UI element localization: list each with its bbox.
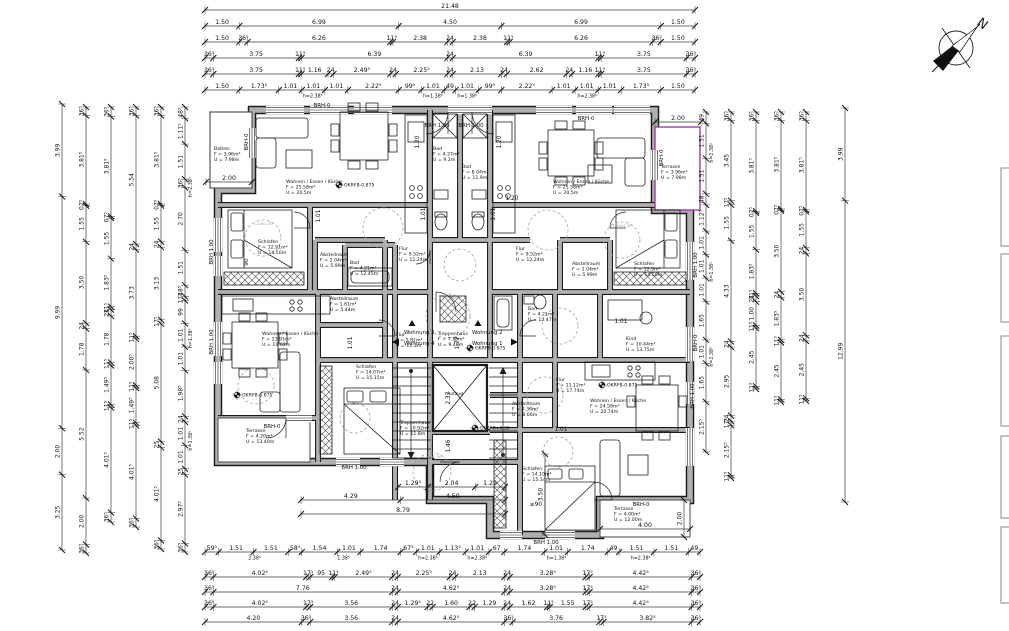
dim-label: 1.55 <box>79 217 86 231</box>
dim-label: 1.55 <box>749 224 756 238</box>
dim-label: 4.42⁵ <box>632 570 649 577</box>
dim-annotation: h=2.38⁵ <box>709 143 715 163</box>
apartment-label: Wohnung 4 <box>404 341 435 347</box>
dim-label: 1.65 <box>699 314 706 328</box>
turning-circle-label: 1.20x1.20 <box>253 221 273 226</box>
window <box>214 218 222 252</box>
room-label-abstell-br: AbstellraumF = 4.36m²U = 8.66m <box>512 401 541 418</box>
dim-chain-p7: 2.00 <box>652 115 704 126</box>
dim-label: 11⁵ <box>386 35 397 42</box>
plan-dim-label: 1.01 <box>316 209 322 222</box>
okrfb-text: OKRFB-0.875 <box>344 183 374 189</box>
window <box>214 256 222 276</box>
dim-label: 99 <box>178 308 185 316</box>
dim-annotation: h=2.38⁵ <box>631 556 651 562</box>
dim-label: 3.56 <box>344 615 358 622</box>
dim-label: 17⁵ <box>154 316 161 327</box>
dim-label: 17⁵ <box>303 600 314 607</box>
dim-label: 67⁵ <box>403 545 414 552</box>
dim-label: 59⁵ <box>207 545 218 552</box>
brh-label: BRH 1.00 <box>424 123 450 129</box>
dim-annotation: h=1.38⁵ <box>188 431 194 451</box>
dim-label: 11⁵ <box>328 570 339 577</box>
dim-label: 1.51 <box>699 169 706 183</box>
dim-label: 67 <box>493 545 501 552</box>
dim-label: 3.56 <box>344 600 358 607</box>
dim-annotation: 2.38⁵ <box>248 556 261 562</box>
dim-label: 22 <box>426 600 434 607</box>
dim-label: 58⁵ <box>290 545 301 552</box>
dim-label: 2.00 <box>671 115 685 122</box>
dim-label: 17⁵ <box>303 570 314 577</box>
dim-label: 2.49⁵ <box>355 570 372 577</box>
dim-label: 1.51 <box>178 155 185 169</box>
window <box>545 531 575 539</box>
dim-label: 4.62⁵ <box>443 585 460 592</box>
dim-label: 1.78 <box>104 332 111 346</box>
dim-chain-t1: 21.48 <box>202 3 698 14</box>
dim-label: 1.50 <box>671 19 685 26</box>
brh-label: BRH 1.00 <box>209 239 215 265</box>
dim-label: 3.81⁵ <box>774 156 781 172</box>
dim-label: 2.62 <box>530 67 544 74</box>
dim-label: 4.29 <box>344 493 358 500</box>
dim-label: 1.01 <box>421 545 435 552</box>
window <box>214 362 222 384</box>
brh-label: BRH-0 <box>264 424 281 430</box>
dim-label: 4.62⁵ <box>443 615 460 622</box>
dim-label: 4.00 <box>638 522 652 529</box>
dim-chain-r2: 36⁵3.4517⁵1.554.33242.952417⁵2.15⁵11⁵ <box>724 109 736 482</box>
dim-label: 11⁵ <box>595 51 606 58</box>
dim-label: 5.08 <box>154 376 161 390</box>
dim-label: 1.01 <box>699 259 706 273</box>
turning-circle-label: 1.50x1.50 <box>438 295 458 300</box>
plan-dim-label: 1.20 <box>415 135 421 148</box>
dim-label: 25 <box>178 468 185 476</box>
window <box>286 414 312 422</box>
dim-annotation: h=1.38⁵ <box>547 556 567 562</box>
dim-annotation: h=2.38⁵ <box>188 177 194 197</box>
dim-label: 2.00 <box>79 514 86 528</box>
dim-label: 3.99 <box>838 147 845 161</box>
dim-label: 1.50 <box>215 83 229 90</box>
dim-label: 2.97⁵ <box>178 501 185 517</box>
dim-label: 2.38 <box>413 35 427 42</box>
dim-label: 3.73 <box>129 286 136 300</box>
dim-label: 1.73⁵ <box>251 83 268 90</box>
dim-label: 1.01 <box>178 328 185 342</box>
dim-label: 3.28⁵ <box>540 570 557 577</box>
dim-label: 3.81⁵ <box>104 158 111 174</box>
floorplan-page: 1.20x1.201.20x1.201.50x1.501.50x1.50 Bal… <box>0 0 1009 631</box>
dim-label: 1.29⁵ <box>405 480 422 487</box>
dim-label: 1.55 <box>104 232 111 246</box>
dim-label: 9.99 <box>55 306 62 320</box>
dim-label: 36⁵ <box>129 517 136 528</box>
dim-label: 1.50 <box>215 35 229 42</box>
dim-label: 6.99 <box>574 19 588 26</box>
dim-label: 4.01⁵ <box>129 463 136 479</box>
dim-label: 1.01 <box>178 450 185 464</box>
okrfb-text: OKRFB-0.875 <box>607 383 637 389</box>
dim-chain-r4: 36⁵3.81⁵07⁵3.50241.83⁵11⁵2.4511⁵ <box>774 109 786 406</box>
dim-label: 48 <box>699 195 706 203</box>
dim-label: 2.49⁵ <box>354 67 371 74</box>
window <box>448 106 492 114</box>
plan-dim-label: 1.01 <box>615 319 628 325</box>
dim-label: 6.99 <box>312 19 326 26</box>
dim-label: 1.01 <box>699 283 706 297</box>
dim-label: 2.13 <box>470 67 484 74</box>
dim-label: 1.51 <box>664 545 678 552</box>
plan-dim-label: 1.20 <box>497 135 503 148</box>
dim-label: 4.33 <box>724 284 731 298</box>
dim-label: 17⁵ <box>582 570 593 577</box>
room-label-abstell-tr: AbstellraumF = 2.04m²U = 5.99m <box>572 261 601 278</box>
dim-annotation: h=2.38⁵ <box>709 347 715 367</box>
dim-label: 2.25⁵ <box>413 67 430 74</box>
plan-dim-label: 1.77 <box>455 336 461 349</box>
dim-label: 2.00⁵ <box>129 354 136 370</box>
dim-label: 1.01 <box>699 345 706 359</box>
dim-chain-l1: 3.999.992.003.25 <box>55 101 67 553</box>
dim-label: 12.99 <box>838 343 845 360</box>
dim-label: 4.01⁵ <box>104 452 111 468</box>
dim-label: 1.74 <box>518 545 532 552</box>
okrfb-text: OKRFB+0.38 <box>480 426 510 432</box>
dim-label: 1.55 <box>154 217 161 231</box>
dim-label: 36⁵ <box>154 106 161 117</box>
dim-label: 1.01 <box>178 427 185 441</box>
dim-label: 36⁵ <box>129 106 136 117</box>
turning-circle-label: 1.20x1.20 <box>612 223 632 228</box>
right-edge-boxes <box>1001 168 1009 603</box>
window <box>576 106 612 114</box>
dim-label: 36⁵ <box>178 542 185 553</box>
dim-label: 4.01⁵ <box>154 486 161 502</box>
dim-label: 2.95 <box>724 374 731 388</box>
dim-label: 3.25 <box>55 505 62 519</box>
dim-label: 1.01 <box>580 83 594 90</box>
dim-label: 2.38 <box>473 35 487 42</box>
dim-label: 6.26 <box>574 35 588 42</box>
dim-label: 36⁵ <box>799 111 806 122</box>
dim-label: 3.75 <box>249 51 263 58</box>
dim-label: 1.50 <box>671 83 685 90</box>
plan-dim-label: 1.01 <box>421 207 427 220</box>
dim-label: 99⁵ <box>405 83 416 90</box>
dim-chain-r1: 491.511.51481.12⁵1.011.011.011.651.011.6… <box>699 109 716 455</box>
dim-label: 1.01 <box>557 83 571 90</box>
brh-label: BRH-0 <box>633 502 650 508</box>
dim-label: 36⁵ <box>724 111 731 122</box>
dim-label: 2.45 <box>774 364 781 378</box>
dim-label: 1.98⁵ <box>178 385 185 401</box>
dim-label: 2.04 <box>445 480 459 487</box>
dim-chain-b3: 36⁵7.76244.62⁵243.28⁵17⁵4.42⁵36⁵ <box>202 585 703 596</box>
dim-annotation: h=1.38⁵ <box>709 262 715 282</box>
dim-label: 1.51 <box>630 545 644 552</box>
plan-dim-label: 2.37 <box>446 391 452 404</box>
dim-label: 3.75 <box>637 51 651 58</box>
north-compass: N <box>932 15 990 72</box>
dim-label: 3.75 <box>637 67 651 74</box>
dim-label: 1.01 <box>330 83 344 90</box>
brh-label: BRH 1.00 <box>341 465 367 471</box>
dim-label: 21.48 <box>441 3 459 10</box>
plan-dim-label: 1.46 <box>446 439 452 452</box>
brh-label: BRH-0 <box>659 149 665 166</box>
dim-label: 2.22⁵ <box>365 83 382 90</box>
dim-label: 1.29 <box>483 600 497 607</box>
dim-label: 1.01 <box>178 352 185 366</box>
dim-label: 4.20 <box>247 615 261 622</box>
dim-label: 4.50 <box>446 493 460 500</box>
dim-label: 1.11⁵ <box>178 123 185 139</box>
window <box>214 322 222 356</box>
dim-chain-l2: 36⁵3.81⁵07⁵1.553.50241.785.522.0036⁵ <box>79 104 91 556</box>
dim-label: 1.01 <box>306 83 320 90</box>
dim-label: 3.81⁵ <box>749 157 756 173</box>
dim-label: 1.83⁵ <box>774 310 781 326</box>
dim-chain-l4: 36⁵5.54243.7311⁵2.00⁵11⁵1.49⁵11⁵4.01⁵36⁵ <box>129 104 141 530</box>
window <box>651 150 659 180</box>
dim-label: 1.00 <box>749 307 756 321</box>
dim-label: 1.13⁵ <box>444 545 461 552</box>
dim-label: 36⁵ <box>774 111 781 122</box>
dim-label: 1.65 <box>699 376 706 390</box>
dim-label: 1.73⁵ <box>633 83 650 90</box>
window <box>266 106 304 114</box>
dim-chain-r6: 3.9912.99 <box>838 105 850 505</box>
dim-label: 2.25⁵ <box>416 570 433 577</box>
dim-label: 3.50 <box>538 488 545 502</box>
window <box>380 458 404 466</box>
dim-label: 1.16 <box>308 67 322 74</box>
dim-label: 24 <box>104 309 111 317</box>
dim-label: 3.50 <box>799 288 806 302</box>
brh-label: BRH-0 <box>244 133 250 150</box>
apartment-label: Wohnung 2 <box>472 330 503 336</box>
dim-label: 25 <box>154 441 161 449</box>
dim-label: 5.52 <box>79 427 86 441</box>
dim-label: 3.50 <box>774 244 781 258</box>
dim-label: 1.01 <box>283 83 297 90</box>
dim-label: 1.01 <box>699 236 706 250</box>
brh-label: BRH 1.00 <box>458 123 484 129</box>
window <box>536 106 572 114</box>
dim-label: 11⁵ <box>295 51 306 58</box>
dim-chain-t3: 1.5036⁵6.2611⁵2.38242.3811⁵6.2636⁵1.50 <box>202 35 698 46</box>
dim-label: 1.74 <box>581 545 595 552</box>
dim-chain-p3: 8.79 <box>298 507 508 518</box>
room-label-abstell-tl: AbstellraumF = 2.04m²U = 5.99m <box>320 252 349 269</box>
dim-label: 1.74 <box>374 545 388 552</box>
plan-dim-label: 1.01 <box>491 207 497 220</box>
dim-label: 1.83⁵ <box>749 263 756 279</box>
dim-chain-r3: 36⁵3.81⁵07⁵1.551.83⁵11⁵241.0011⁵2.4511⁵ <box>749 109 761 393</box>
window <box>686 428 694 466</box>
brh-label: BRH 1.00 <box>690 383 696 409</box>
dim-label: 1.54 <box>313 545 327 552</box>
dim-label: 3.82⁵ <box>639 615 656 622</box>
dim-label: 1.01 <box>342 545 356 552</box>
dim-label: 2.70 <box>178 212 185 226</box>
dim-label: 95 <box>317 570 325 577</box>
dim-label: 2.22⁵ <box>519 83 536 90</box>
dim-chain-t6: 1.501.73⁵1.011.011.012.22⁵99⁵1.01491.019… <box>202 83 698 100</box>
dim-label: 1.01 <box>603 83 617 90</box>
dim-label: 1.49⁵ <box>129 397 136 413</box>
dim-chain-l5: 36⁵3.81⁵07⁵1.55243.1317⁵5.08254.01⁵36⁵ <box>154 104 166 552</box>
dim-label: 49 <box>446 83 454 90</box>
dim-label: 2.45 <box>799 363 806 377</box>
dim-label: 1.01 <box>460 83 474 90</box>
dim-label: 1.51 <box>229 545 243 552</box>
dim-annotation: h=2.38⁵ <box>418 556 438 562</box>
plan-dim-label: 1.01 <box>555 427 568 433</box>
dim-chain-l3: 36⁵3.81⁵07⁵1.551.83⁵11⁵241.7811⁵1.49⁵11⁵… <box>104 104 116 525</box>
dim-label: 17⁵ <box>178 293 185 304</box>
wardrobe <box>224 272 304 285</box>
room-label-abstell-bl: AbstellraumF = 1.61m²U = 5.44m <box>330 296 359 313</box>
dim-annotation: h=2.38⁵ <box>303 94 323 100</box>
dim-label: 11⁵ <box>503 35 514 42</box>
dim-chain-l6: 48⁵1.11⁵1.5136⁵2.701.5148⁵17⁵991.011.011… <box>178 104 195 555</box>
dim-label: 4.50 <box>443 19 457 26</box>
dim-annotation: h=1.38⁵ <box>457 94 477 100</box>
dim-label: 49 <box>610 545 618 552</box>
plan-dim-label: 1.20 <box>506 196 519 202</box>
dim-label: 1.12⁵ <box>699 209 706 225</box>
dim-label: 1.55 <box>561 600 575 607</box>
dim-label: 3.76 <box>549 615 563 622</box>
dim-label: 1.83⁵ <box>104 274 111 290</box>
compass-n-label: N <box>974 15 991 33</box>
dim-label: 3.13 <box>154 277 161 291</box>
brh-label: BRH-0 <box>578 116 595 122</box>
dim-label: 1.60 <box>444 600 458 607</box>
okrfb-text: OKRFB-0.875 <box>242 393 272 399</box>
dim-label: 1.62 <box>522 600 536 607</box>
dim-label: 2.00 <box>222 175 236 182</box>
dim-chain-b4: 36⁵4.02⁵17⁵3.56241.29⁵221.60221.29241.62… <box>202 600 703 611</box>
brh-label: BRH 1.00 <box>209 329 215 355</box>
dim-label: 5.54 <box>129 173 136 187</box>
dim-label: 3.45 <box>724 154 731 168</box>
dim-label: 3.75 <box>249 67 263 74</box>
floor-plan-drawing: 1.20x1.201.20x1.201.50x1.501.50x1.50 Bal… <box>0 0 1009 631</box>
dim-label: 1.50 <box>671 35 685 42</box>
window <box>614 106 650 114</box>
dim-label: 3.81⁵ <box>154 151 161 167</box>
dim-label: 6.39 <box>519 51 533 58</box>
dim-label: 99⁵ <box>485 83 496 90</box>
dim-annotation: 1.38⁵ <box>337 556 350 562</box>
dim-label: 36⁵ <box>79 543 86 554</box>
dim-label: 2.45 <box>749 350 756 364</box>
brh-label: BRH-0 <box>314 103 331 109</box>
dim-label: 22 <box>468 600 476 607</box>
dim-label: 17⁵ <box>724 197 731 208</box>
plan-dim-label: ≥90 <box>530 502 543 508</box>
dim-chain-r5: 36⁵3.81⁵07⁵1.55243.50242.4511⁵ <box>799 109 811 405</box>
dim-chain-b1: 59⁵1.511.5158⁵1.541.011.7467⁵1.011.13⁵1.… <box>202 545 703 562</box>
dim-label: 3.28⁵ <box>540 585 557 592</box>
dim-label: 1.01 <box>549 545 563 552</box>
dim-label: 17⁵ <box>596 615 607 622</box>
dim-label: 49 <box>690 545 698 552</box>
dim-label: 3.81⁵ <box>799 157 806 173</box>
plan-dim-label: 90 <box>244 258 250 266</box>
dim-label: 2.00 <box>677 512 684 526</box>
dim-chain-t2: 1.506.994.506.991.50 <box>202 19 698 30</box>
dim-annotation: h=2.38⁵ <box>467 556 487 562</box>
dim-chain-b5: 4.2036⁵3.56244.62⁵36⁵3.7617⁵3.82⁵36⁵ <box>202 615 703 626</box>
dim-label: 17⁵ <box>582 585 593 592</box>
dim-label: 1.16 <box>578 67 592 74</box>
dim-label: 1.29 <box>483 480 497 487</box>
dim-annotation: h=1.38⁵ <box>188 328 194 348</box>
dim-label: 1.50 <box>215 19 229 26</box>
dim-label: 4.02⁵ <box>252 600 269 607</box>
dim-label: 6.26 <box>312 35 326 42</box>
dim-annotation: h=1.38⁵ <box>423 94 443 100</box>
dim-chain-b2: 36⁵4.02⁵17⁵9511⁵2.49⁵242.25⁵242.13243.28… <box>202 570 703 581</box>
dim-label: 11⁵ <box>295 67 306 74</box>
apartment-label: Wohnung 3 <box>404 330 435 336</box>
plan-dim-label: 1.01 <box>348 336 354 349</box>
dim-label: 1.55 <box>724 216 731 230</box>
dim-label: 36⁵ <box>154 539 161 550</box>
window <box>500 531 522 539</box>
dim-label: 8.79 <box>396 507 410 514</box>
dim-label: 3.50 <box>79 276 86 290</box>
dim-label: 6.39 <box>367 51 381 58</box>
dim-label: 17⁵ <box>582 600 593 607</box>
dim-label: 4.42⁵ <box>632 600 649 607</box>
dim-label: 4.42⁵ <box>632 585 649 592</box>
dim-chain-t4: 36⁵3.7511⁵6.39246.3911⁵3.7536⁵ <box>202 51 698 62</box>
dim-label: 2.15⁵ <box>724 442 731 458</box>
dim-label: 36⁵ <box>79 106 86 117</box>
dim-label: 1.49⁵ <box>104 377 111 393</box>
apartment-label: Wohnung 1 <box>472 341 503 347</box>
dim-label: 4.02⁵ <box>252 570 269 577</box>
dim-label: 2.00 <box>55 445 62 459</box>
dim-label: 2.15⁵ <box>699 418 706 434</box>
dim-label: 36⁵ <box>178 178 185 189</box>
dim-label: 7.76 <box>296 585 310 592</box>
dim-label: 1.51 <box>699 134 706 148</box>
dim-label: 1.01 <box>426 83 440 90</box>
dim-label: 11⁵ <box>595 67 606 74</box>
dim-label: 2.13 <box>473 570 487 577</box>
dim-label: 17⁵ <box>724 418 731 429</box>
dim-label: 1.78 <box>79 342 86 356</box>
dim-label: 1.55 <box>799 223 806 237</box>
dim-label: 1.01 <box>470 545 484 552</box>
dim-label: 1.51 <box>178 261 185 275</box>
dim-label: 3.99 <box>55 143 62 157</box>
dim-label: 3.81⁵ <box>79 151 86 167</box>
dim-label: 1.29⁵ <box>405 600 422 607</box>
dim-label: 1.51 <box>264 545 278 552</box>
turning-circle-label: 1.50x1.50 <box>422 454 442 459</box>
dim-label: 11⁵ <box>543 600 554 607</box>
dim-annotation: h=2.38⁵ <box>577 94 597 100</box>
